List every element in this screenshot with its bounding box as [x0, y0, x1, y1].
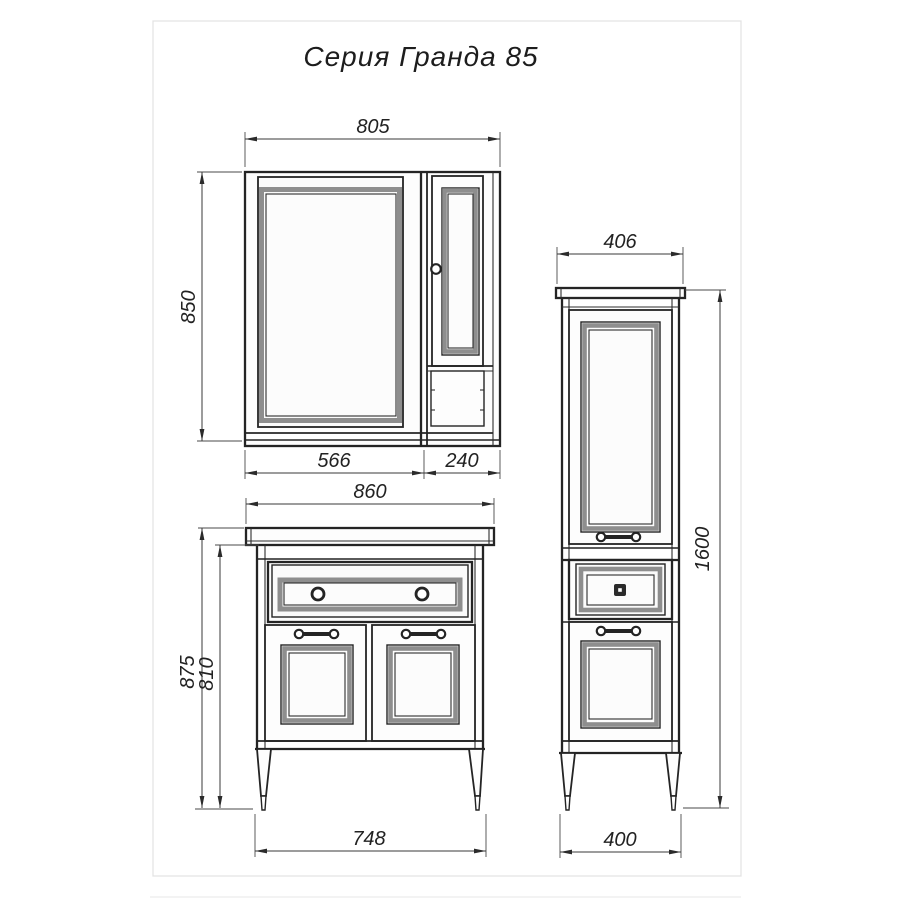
handle-end: [632, 627, 640, 635]
dim-mirror-cabinet-height: 850: [178, 172, 242, 441]
side-cabinet-door: [431, 176, 483, 366]
dim-label-406: 406: [603, 231, 637, 253]
dim-label-566: 566: [317, 450, 351, 472]
countertop: [246, 528, 494, 545]
dim-label-400: 400: [603, 829, 636, 851]
dim-vanity-width: 860: [246, 481, 494, 524]
tall-cabinet-divider: [562, 548, 679, 560]
handle-end: [295, 630, 303, 638]
handle-end: [632, 533, 640, 541]
drawer-square-knob-center: [618, 588, 622, 592]
handle-end: [437, 630, 445, 638]
dim-mirror-cabinet-width: 805: [245, 116, 500, 167]
tall-cabinet-base-and-legs: [559, 741, 682, 810]
mirror-panel: [258, 177, 403, 427]
handle-end: [402, 630, 410, 638]
furniture-dimension-drawing: Серия Гранда 85 805 850: [0, 0, 900, 900]
open-shelf-niche: [427, 366, 493, 426]
dim-tall-cabinet-height: 1600: [683, 290, 729, 808]
leg: [257, 749, 271, 796]
vanity-base-and-legs: [255, 741, 485, 810]
leg-foot: [261, 796, 266, 810]
dim-label-850: 850: [178, 290, 200, 323]
leg: [561, 753, 575, 796]
tall-cabinet-upper-door: [569, 310, 672, 544]
vanity-view: 860: [177, 481, 494, 857]
vanity-drawer: [268, 562, 472, 622]
drawer-knob-right: [416, 588, 428, 600]
drawer-knob-left: [312, 588, 324, 600]
handle-end: [597, 627, 605, 635]
tall-cabinet-drawer: [562, 560, 679, 622]
mirror-cabinet-view: 805 850: [178, 116, 500, 479]
vanity-door-left: [265, 625, 366, 741]
dim-label-805: 805: [356, 116, 390, 138]
tall-cabinet-view: 406: [556, 231, 729, 858]
leg-foot: [565, 796, 570, 810]
vanity-door-right: [372, 625, 475, 741]
handle-end: [597, 533, 605, 541]
technical-drawing-page: Серия Гранда 85 805 850: [0, 0, 900, 900]
dim-tall-cabinet-feet-width: 400: [560, 814, 681, 858]
page-title: Серия Гранда 85: [303, 41, 538, 72]
dim-label-860: 860: [353, 481, 386, 503]
dim-label-810: 810: [196, 657, 218, 690]
dim-label-748: 748: [352, 828, 385, 850]
leg-foot: [671, 796, 676, 810]
dim-side-cabinet-width: 240: [424, 450, 500, 473]
dim-vanity-body-height: 810: [196, 545, 259, 808]
dim-vanity-feet-width: 748: [255, 814, 486, 857]
dim-label-1600: 1600: [692, 527, 714, 572]
door-knob: [431, 264, 441, 274]
leg: [469, 749, 483, 796]
leg: [666, 753, 680, 796]
tall-cabinet-lower-door: [569, 622, 672, 741]
dim-tall-cabinet-width: 406: [557, 231, 683, 284]
dim-label-240: 240: [444, 450, 478, 472]
handle-end: [330, 630, 338, 638]
tall-cabinet-top-board: [556, 288, 685, 298]
leg-foot: [475, 796, 480, 810]
